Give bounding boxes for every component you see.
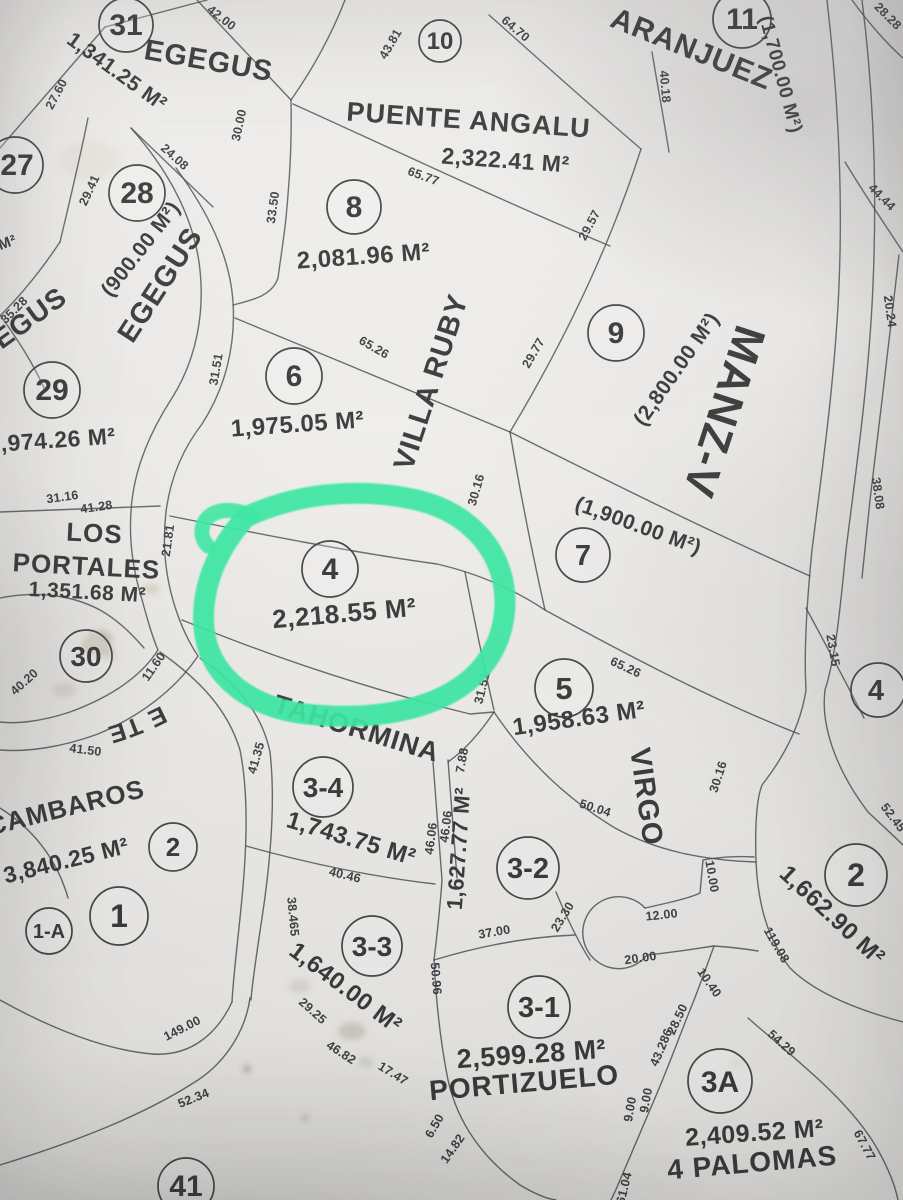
lot-name: LOS xyxy=(65,517,123,550)
lot-number: 31 xyxy=(109,9,142,42)
lot-number: 41 xyxy=(169,1170,202,1200)
lot-number: 4 xyxy=(322,553,339,586)
lot-number: 3-2 xyxy=(507,853,549,885)
lot-number: 29 xyxy=(35,374,68,407)
lot-number: 3A xyxy=(701,1066,739,1099)
lot-number: 3-4 xyxy=(303,772,344,803)
lot-number: 5 xyxy=(555,671,572,706)
lot-number: 11 xyxy=(726,3,758,36)
map-photo: 31 10 11 27 28 8 29 6 9 7 4 30 5 xyxy=(0,0,903,1200)
lot-number: 2 xyxy=(847,857,865,893)
stain xyxy=(289,979,311,993)
dimension-label: 40.18 xyxy=(657,70,674,103)
lot-number: 7 xyxy=(575,540,591,572)
lot-number: 10 xyxy=(427,28,454,55)
stain xyxy=(338,1022,366,1040)
lot-number: 8 xyxy=(346,191,363,224)
lot-number: 28 xyxy=(120,177,153,210)
stain xyxy=(302,1115,308,1121)
lot-number: 6 xyxy=(286,360,303,393)
lot-number: 4 xyxy=(868,675,884,707)
lot-number: 3-1 xyxy=(518,992,560,1024)
dimension-label: 50.96 xyxy=(428,962,445,995)
lot-number: 27 xyxy=(0,149,33,182)
cadastral-map-canvas: 31 10 11 27 28 8 29 6 9 7 4 30 5 xyxy=(0,0,903,1200)
stain xyxy=(244,1066,251,1073)
lot-number: 30 xyxy=(70,641,101,672)
lot-number: 3-3 xyxy=(352,931,392,962)
lot-number: 9 xyxy=(608,317,625,350)
lot-number: 2 xyxy=(166,832,180,862)
stain xyxy=(359,1057,373,1067)
lot-number: 1-A xyxy=(33,921,65,943)
stain xyxy=(53,683,75,697)
lot-number: 1 xyxy=(110,898,128,934)
